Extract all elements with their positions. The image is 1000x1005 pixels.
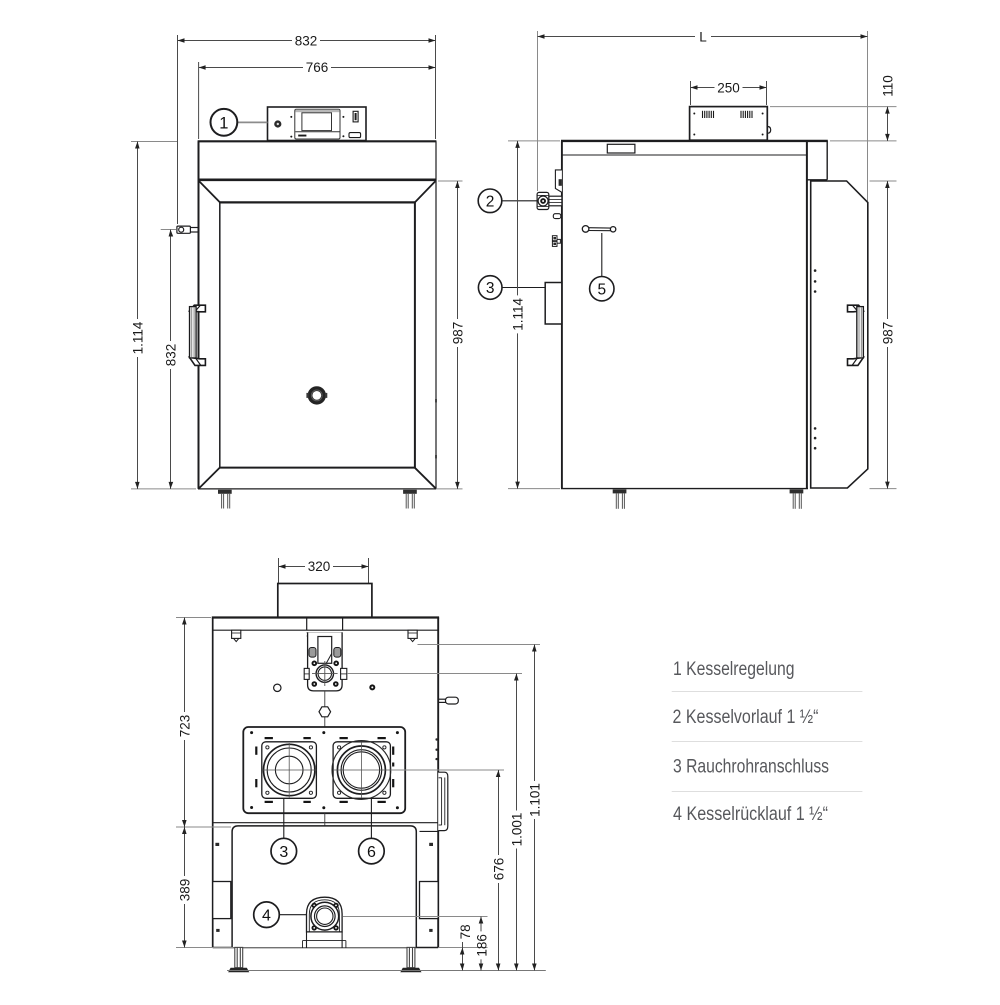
svg-text:1.114: 1.114 <box>130 321 145 354</box>
svg-text:1.114: 1.114 <box>510 298 525 331</box>
svg-text:4: 4 <box>262 908 271 925</box>
svg-text:987: 987 <box>880 322 895 345</box>
svg-text:1 Kesselregelung: 1 Kesselregelung <box>673 659 795 680</box>
svg-text:110: 110 <box>880 75 895 97</box>
svg-text:3: 3 <box>279 844 288 861</box>
svg-text:186: 186 <box>474 934 489 957</box>
svg-text:676: 676 <box>491 858 506 881</box>
svg-text:320: 320 <box>308 559 331 574</box>
svg-text:1: 1 <box>219 114 228 132</box>
svg-text:250: 250 <box>717 80 740 95</box>
svg-text:5: 5 <box>597 281 606 298</box>
svg-text:2: 2 <box>486 193 495 210</box>
svg-text:3 Rauchrohranschluss: 3 Rauchrohranschluss <box>673 757 829 778</box>
svg-text:766: 766 <box>306 60 329 75</box>
svg-text:832: 832 <box>163 344 178 367</box>
svg-text:6: 6 <box>367 844 376 861</box>
svg-text:1.101: 1.101 <box>527 783 542 817</box>
svg-text:2 Kesselvorlauf 1 ½“: 2 Kesselvorlauf 1 ½“ <box>673 707 819 728</box>
svg-text:3: 3 <box>486 280 495 297</box>
svg-text:987: 987 <box>450 322 465 345</box>
svg-text:723: 723 <box>177 715 192 738</box>
svg-text:L: L <box>699 30 707 45</box>
svg-text:1.001: 1.001 <box>509 813 524 847</box>
svg-text:4 Kesselrücklauf 1 ½“: 4 Kesselrücklauf 1 ½“ <box>673 804 828 825</box>
svg-text:832: 832 <box>295 33 318 48</box>
svg-text:389: 389 <box>177 879 192 902</box>
svg-text:78: 78 <box>458 924 473 939</box>
